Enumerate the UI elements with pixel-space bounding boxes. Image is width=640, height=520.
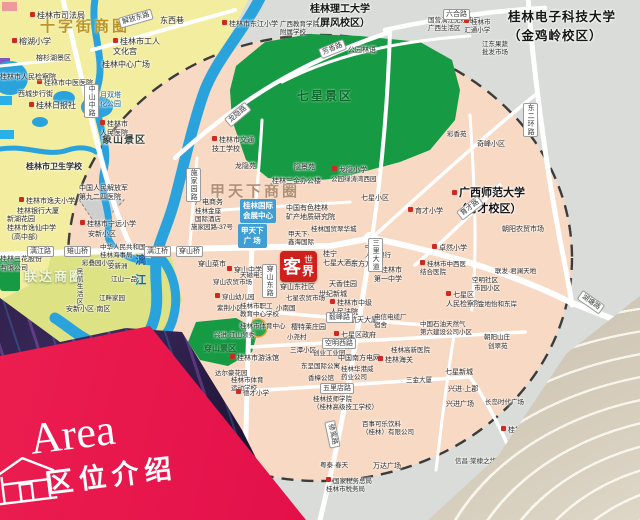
map-label: 西城步行街	[18, 91, 53, 100]
map-label: 江东果蔬 批发市场	[482, 41, 508, 57]
map-label: 东呈国际公寓	[301, 363, 340, 371]
map-label: 万达广场	[373, 463, 401, 472]
map-label: 七星小区	[361, 195, 389, 204]
map-label: 穿山农贸市场	[213, 279, 252, 287]
map-label: 桂林市中西医 结合医院	[420, 260, 466, 277]
map-label: 彩香苑	[447, 131, 467, 139]
map-label: 兴进·上郡	[448, 386, 478, 395]
poi-marker-icon	[100, 120, 105, 125]
map-label: 毅峰路	[326, 312, 353, 323]
map-label: 安新小区	[88, 231, 116, 240]
poi-marker-icon	[330, 299, 335, 304]
map-label: 东二环路	[523, 103, 538, 137]
map-label: 德才小学	[236, 389, 269, 398]
map-label: 穿山东路	[262, 264, 277, 298]
map-label: 施家园路-37号	[191, 224, 233, 232]
map-label: 桂林市宁远小学	[80, 220, 136, 230]
poi-marker-icon	[501, 426, 506, 431]
poi-marker-icon	[420, 260, 425, 265]
map-label: 桂林海关	[378, 356, 413, 366]
map-label: 隐景苑	[294, 164, 315, 173]
map-label: 公园林语	[348, 47, 376, 56]
poi-marker-icon	[30, 12, 35, 17]
poi-marker-icon	[12, 38, 17, 43]
map-label: 百事可乐饮料 （桂林）有限公司	[362, 421, 414, 437]
poi-marker-icon	[215, 293, 220, 298]
map-label: 桂林日报社	[29, 101, 76, 111]
map-label: 漓江路	[27, 246, 54, 257]
map-label: 香樟公馆	[308, 375, 334, 383]
map-label: 穿山桥	[176, 246, 203, 257]
map-label: 桂林理工大学 （屏风校区）	[310, 3, 370, 31]
map-label: 电信电缆厂 宿舍	[374, 314, 407, 330]
map-label: 东西巷	[160, 16, 184, 26]
poi-marker-icon	[19, 197, 24, 202]
map-label: 安新小区·南区	[66, 306, 110, 315]
map-label: 江山一品	[111, 276, 137, 284]
map-label: 卓然小学	[432, 244, 467, 254]
map-label: 桂林三金办公楼	[272, 178, 321, 187]
map-label: 榕湖小学	[12, 37, 51, 47]
map-label: 朝阳农贸市场	[502, 226, 544, 235]
map-label: 民航生活区	[74, 268, 82, 306]
map-label: 桂林技师学院 （桂林高级技工学校）	[313, 396, 378, 412]
poi-marker-icon	[332, 166, 337, 171]
poi-marker-icon	[29, 102, 34, 107]
map-label: 桂林市司法局	[30, 11, 85, 21]
poi-marker-icon	[334, 331, 339, 336]
poi-marker-icon	[446, 291, 451, 296]
map-label: 兴进广场	[446, 401, 474, 410]
map-label: 广西教育学院 附属学校	[280, 21, 319, 37]
poi-marker-icon	[432, 244, 437, 249]
map-label: 金地怡和东岸	[478, 301, 517, 309]
map-label: 中国有色桂林 矿产地质研究院	[286, 205, 335, 223]
map-label: 桂林中心广场	[102, 60, 150, 70]
map-label: 天香佳园	[329, 281, 357, 290]
poi-marker-icon	[222, 20, 227, 25]
map-label: 六合路	[443, 9, 470, 20]
map-label: 芳香路	[318, 39, 347, 59]
map-label: 穿山景区	[204, 344, 236, 354]
map-label: 桂林华港威 药业公司	[341, 366, 374, 382]
map-label: 七星新城	[445, 369, 473, 378]
poi-marker-icon	[227, 266, 232, 271]
map-label: 穿山菜市	[198, 261, 226, 270]
map-label: 桂林市游泳馆	[230, 354, 279, 364]
poi-marker-icon	[230, 354, 235, 359]
map-label: 桂林市体育中心	[240, 323, 286, 331]
map-label: 榕杉湖景区	[36, 55, 71, 64]
map-label: 桂林市人民检察院	[0, 74, 56, 83]
map-label: 江畔家园	[99, 295, 125, 303]
map-label: 桂林市工人 文化宫	[113, 37, 160, 57]
map-label: 七星景区	[297, 89, 353, 104]
poi-marker-icon	[378, 356, 383, 361]
map-label: 奇峰小区	[477, 141, 505, 150]
map-label: 湖塘路	[577, 290, 605, 315]
map-label: 育才小学	[408, 207, 443, 217]
map-label: 桂林市卫生学校	[26, 162, 82, 172]
map-label: 国家税务总局 桂林市税务局	[326, 477, 372, 494]
poi-marker-icon	[212, 136, 217, 141]
map-label: 龙隐小学	[332, 166, 367, 176]
map-label: 兴进·江山领秀	[214, 332, 255, 340]
map-label: 桂林高新医院	[391, 347, 430, 355]
keshijie-project-logo: 客 世 界	[280, 251, 317, 282]
map-label: 雉山桥	[64, 246, 91, 257]
map-label: 空明西路	[322, 338, 356, 349]
map-label: 小尧村	[287, 334, 307, 342]
map-label: 施家园路	[186, 168, 201, 202]
map-label: 长岛时代广场	[485, 399, 524, 407]
map-label: 三金大厦	[406, 377, 432, 385]
landmark-box-label: 甲天下 广 场	[238, 224, 267, 248]
map-label: 七星农贸市场	[286, 295, 325, 303]
map-label: 公园绿涛湾西园	[331, 176, 377, 184]
map-label: 解放东路	[118, 9, 154, 29]
map-label: 穿山东社区	[280, 284, 315, 293]
map-label: 中国人民解放军 第九二四医院	[79, 185, 128, 203]
map-label: 三里大道	[368, 238, 383, 272]
map-label: 空明社区	[472, 277, 498, 285]
map-label: 桂林市逸仙中学 （高中部）	[7, 225, 56, 243]
poi-marker-icon	[236, 389, 241, 394]
map-label: 朝阳山庄	[484, 334, 510, 342]
logo-char-main: 客	[283, 253, 301, 279]
map-label: 新湖花园	[7, 216, 35, 225]
map-label: 安新洲	[108, 263, 128, 271]
map-label: 桂林市 汇通小学	[464, 18, 491, 35]
map-label: 桂林市职工 教育中心学校	[240, 303, 279, 319]
map-label: 创翠苑	[488, 343, 508, 351]
landmark-box-label: 桂林国际 会展中心	[240, 199, 276, 223]
map-label: 桂林电子科技大学 （金鸡岭校区）	[508, 8, 616, 46]
map-label: 桂林国贸翠华城	[311, 226, 357, 234]
map-label: 漓江桥	[144, 246, 171, 257]
map-label: 龙隐苑	[235, 163, 256, 172]
poi-marker-icon	[326, 477, 331, 482]
map-label: 桂林金座 国际酒店	[195, 208, 221, 224]
map-label: 桂林市逸夫小学	[19, 197, 75, 207]
map-label: 七星区 人民检察院	[446, 291, 481, 310]
map-label: 小南国	[276, 305, 296, 313]
map-label: 中山中路	[84, 84, 99, 118]
map-label: 中华人民共和国 桂林海事局	[100, 244, 146, 260]
map-label: 五里店路	[320, 383, 354, 394]
poi-marker-icon	[113, 38, 118, 43]
map-label: 桂林市东江小学	[222, 20, 278, 30]
poi-marker-icon	[408, 207, 413, 212]
map-label: 桂林市交通 技工学校	[212, 136, 254, 155]
map-label: 穿山幼儿园	[215, 293, 255, 302]
logo-char-sub2: 界	[302, 262, 314, 279]
map-label: 樱特莱庄园	[291, 324, 326, 333]
poi-marker-icon	[452, 190, 457, 195]
map-label: 桂林市 人民医院	[100, 120, 128, 139]
map-label: 中国南方电网	[338, 355, 380, 364]
map-label: 联发·君澜天地	[495, 268, 536, 276]
map-label: 骖鸾路	[324, 420, 340, 449]
map-label: 甲天下· 鑫海国际	[288, 231, 314, 247]
poi-marker-icon	[80, 220, 85, 225]
map-label: 龙隐路	[224, 102, 252, 128]
map-label: 中国石油天然气 第六建设公司小区	[420, 321, 472, 337]
map-label: 桂林三花股份 有限公司	[0, 256, 42, 274]
map-label: 粤泰·春天	[320, 462, 348, 470]
location-map-page: 十字街商圈甲天下商圈联达商圈七星景区象山景区穿山景区漓江桂林电子科技大学 （金鸡…	[0, 0, 640, 520]
